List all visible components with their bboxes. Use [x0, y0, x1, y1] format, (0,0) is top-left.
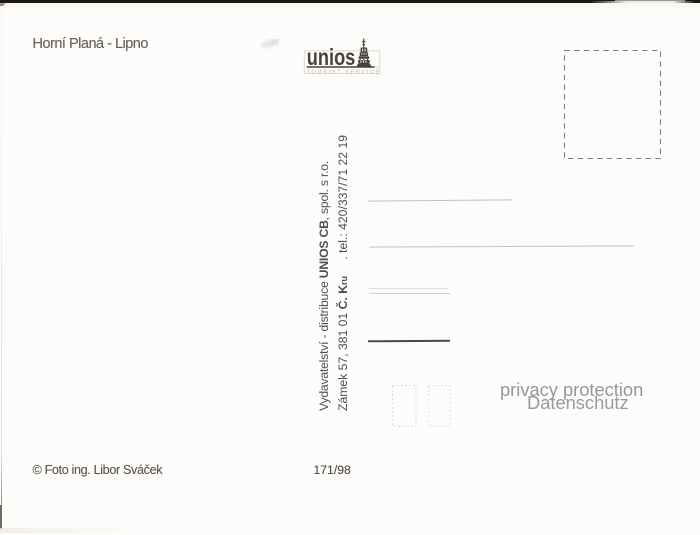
svg-text:unios: unios: [307, 44, 356, 70]
svg-text:TOURIST SERVICE: TOURIST SERVICE: [307, 69, 380, 75]
